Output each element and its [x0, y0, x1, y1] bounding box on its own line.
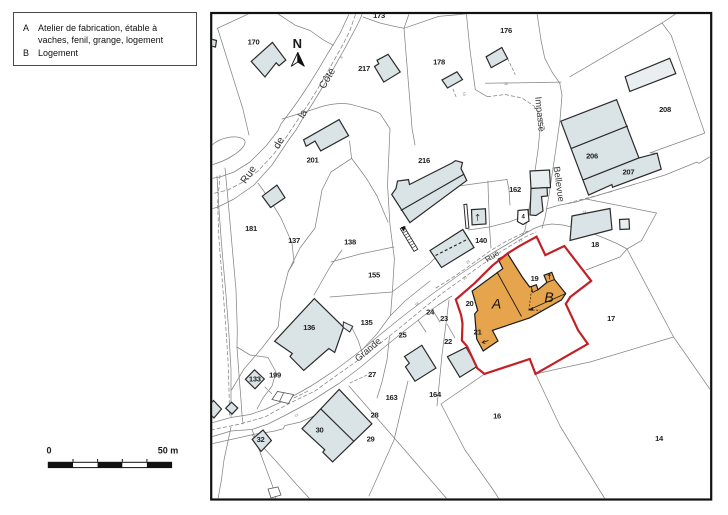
- svg-text:0: 0: [46, 446, 51, 456]
- svg-text:23: 23: [440, 314, 448, 323]
- svg-text:208: 208: [659, 105, 671, 114]
- svg-text:50 m: 50 m: [158, 446, 179, 456]
- svg-text:216: 216: [418, 156, 430, 165]
- svg-text:18: 18: [591, 240, 599, 249]
- svg-text:199: 199: [269, 370, 281, 379]
- svg-text:14: 14: [655, 434, 664, 443]
- svg-text:16: 16: [504, 82, 508, 86]
- svg-text:16: 16: [493, 411, 501, 420]
- svg-text:217: 217: [358, 64, 370, 73]
- svg-text:155: 155: [368, 270, 381, 279]
- svg-text:162: 162: [509, 185, 521, 194]
- svg-text:A: A: [491, 296, 501, 312]
- svg-text:21: 21: [474, 327, 483, 336]
- svg-text:B: B: [544, 289, 553, 305]
- svg-text:207: 207: [623, 167, 635, 176]
- svg-text:170: 170: [248, 37, 260, 46]
- svg-text:201: 201: [307, 155, 320, 164]
- svg-text:178: 178: [433, 57, 445, 66]
- svg-text:138: 138: [344, 237, 356, 246]
- svg-text:19: 19: [531, 274, 539, 283]
- svg-text:30: 30: [316, 425, 324, 434]
- svg-text:29: 29: [367, 434, 375, 443]
- svg-text:22: 22: [444, 337, 452, 346]
- svg-text:27: 27: [368, 370, 376, 379]
- svg-text:20: 20: [466, 299, 474, 308]
- svg-text:206: 206: [586, 151, 598, 160]
- svg-text:176: 176: [500, 26, 512, 35]
- svg-text:17: 17: [607, 314, 615, 323]
- svg-text:133: 133: [249, 375, 261, 384]
- svg-text:25: 25: [399, 330, 408, 339]
- svg-text:14: 14: [582, 210, 587, 215]
- svg-text:32: 32: [257, 435, 265, 444]
- svg-text:24: 24: [426, 307, 435, 316]
- svg-text:181: 181: [245, 224, 258, 233]
- svg-text:28: 28: [371, 410, 379, 419]
- svg-text:163: 163: [386, 393, 398, 402]
- svg-text:137: 137: [288, 236, 300, 245]
- svg-text:135: 135: [361, 318, 374, 327]
- svg-text:10: 10: [462, 91, 467, 96]
- svg-text:136: 136: [303, 323, 315, 332]
- svg-text:164: 164: [429, 390, 442, 399]
- svg-text:N: N: [293, 36, 302, 51]
- svg-text:140: 140: [475, 236, 487, 245]
